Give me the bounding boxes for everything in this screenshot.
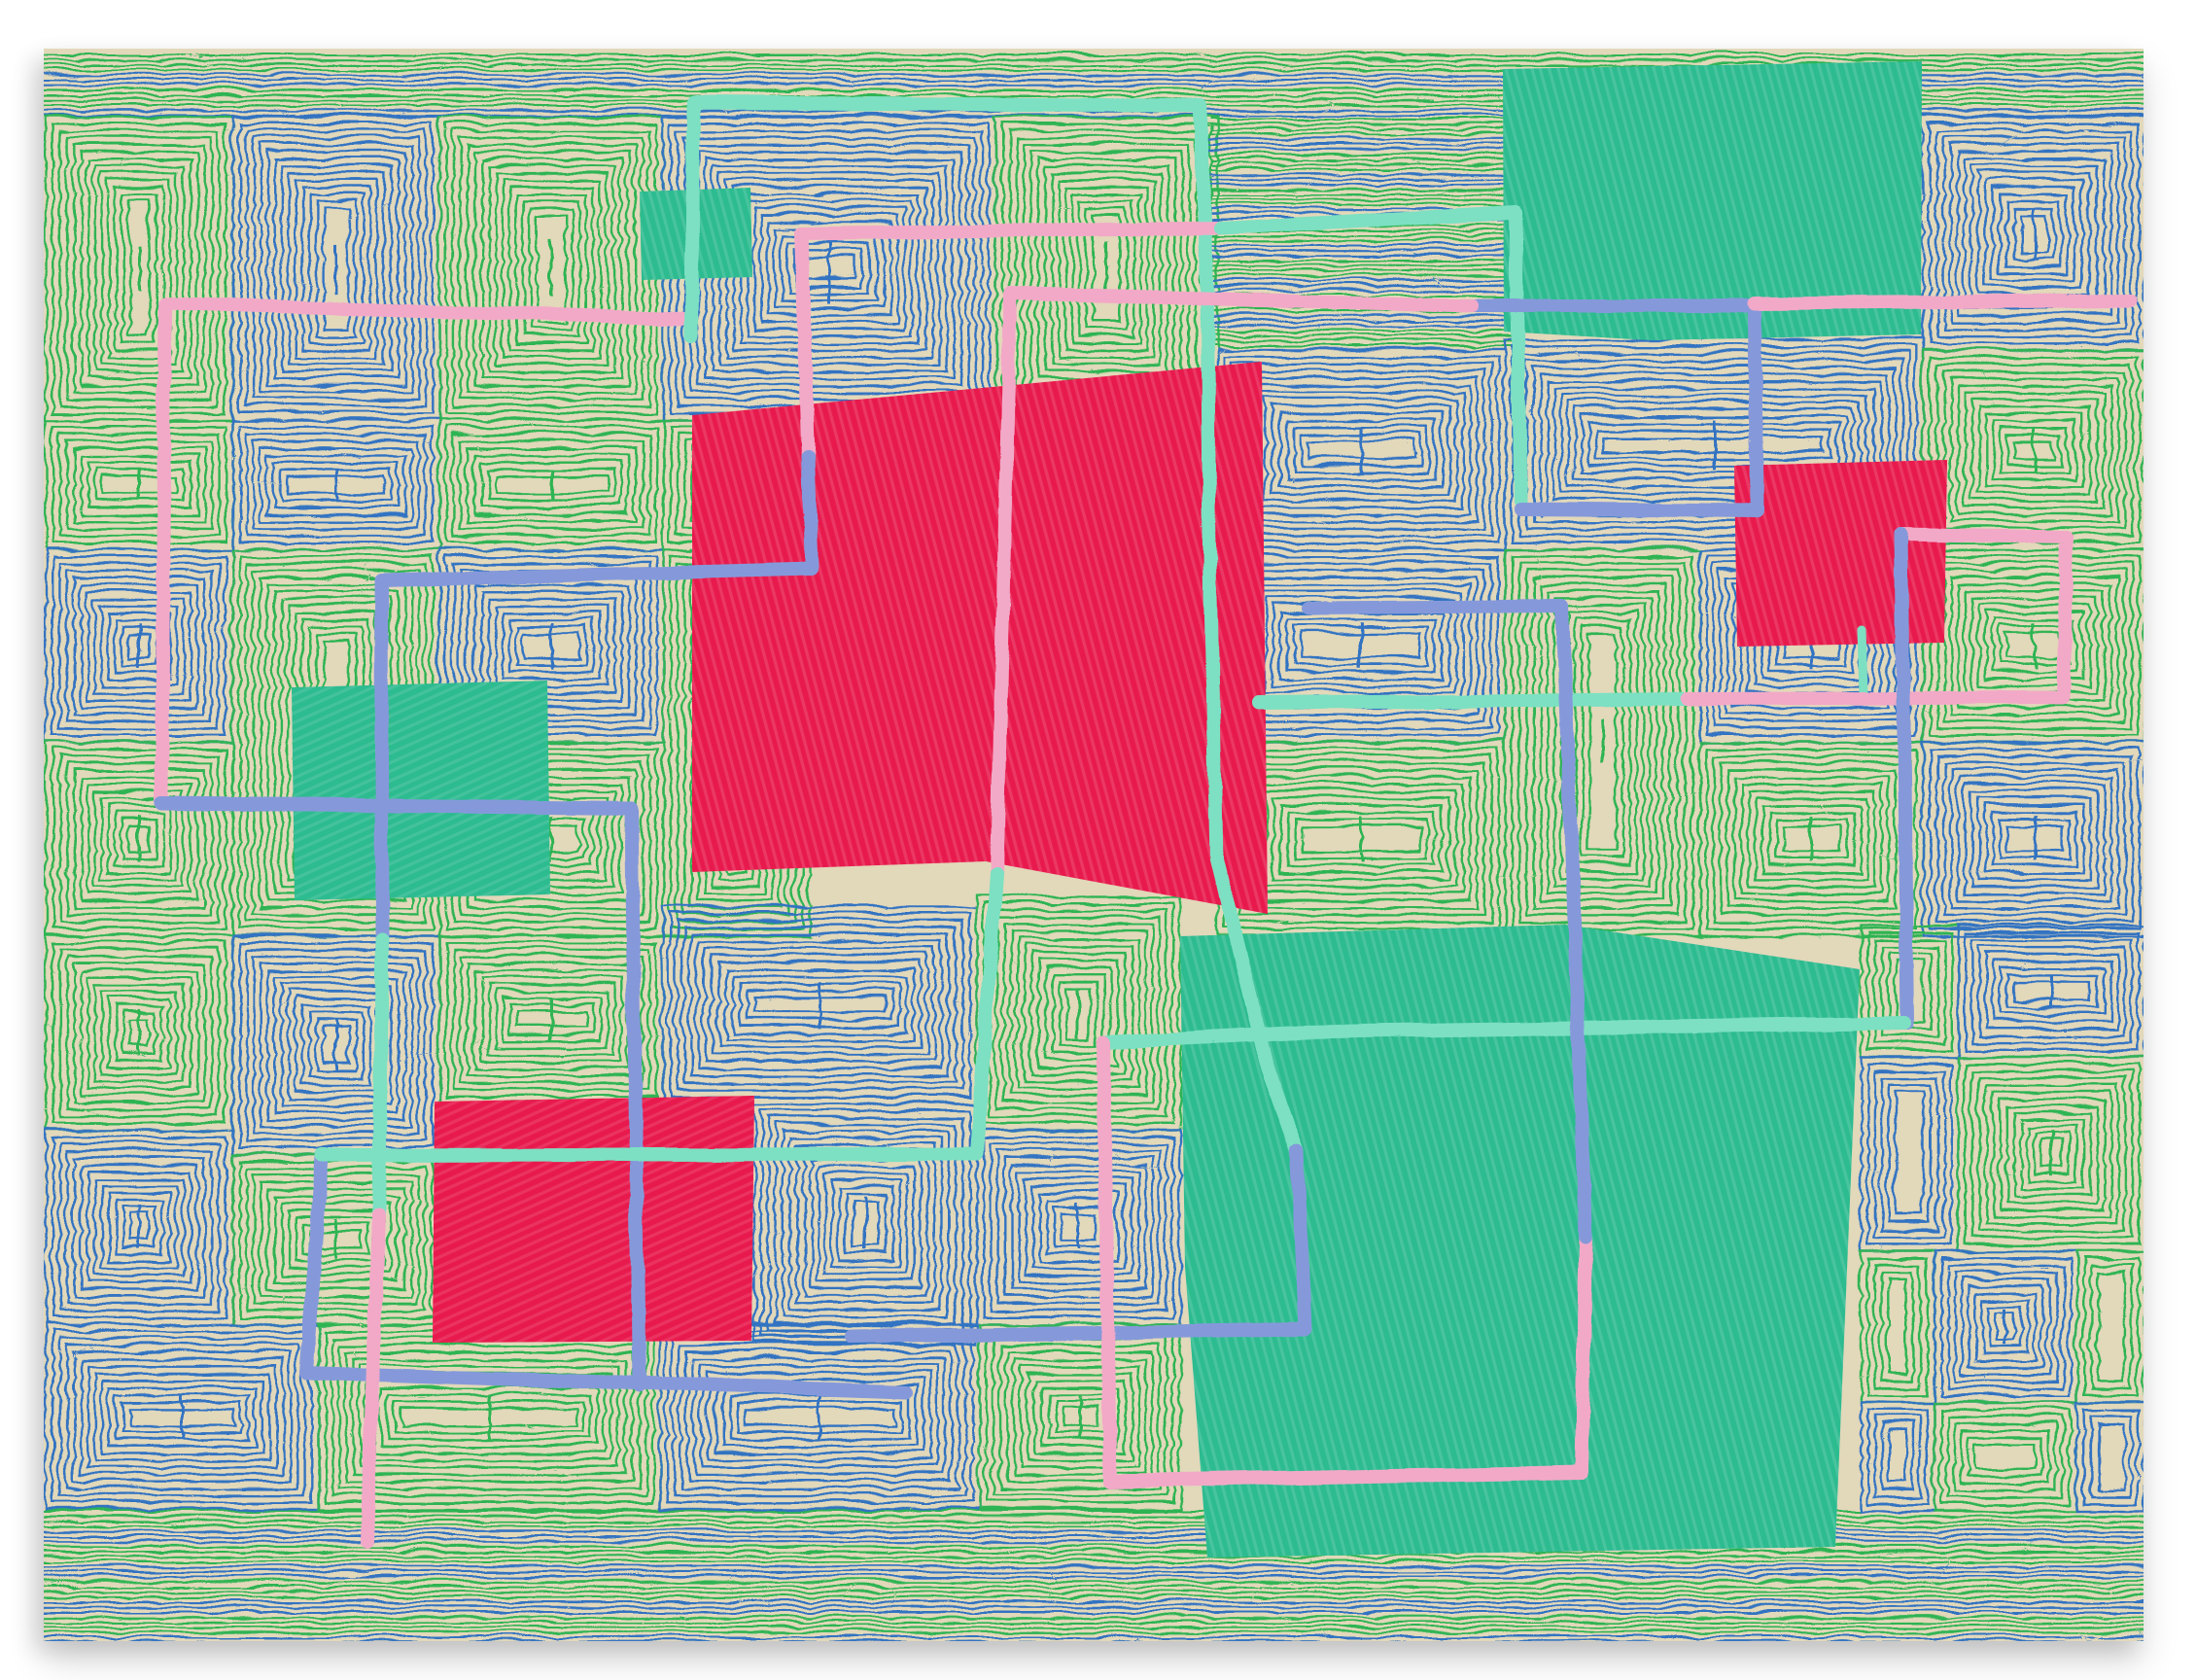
line-bar-f-pink	[799, 227, 1221, 232]
line-tail-h-pink	[1754, 299, 2129, 302]
pattern-tile	[44, 933, 230, 1128]
pattern-tile	[1956, 1055, 2144, 1249]
block-brush-texture	[692, 362, 1268, 914]
pattern-tile	[658, 1322, 977, 1507]
block-brush-texture	[292, 681, 550, 900]
pattern-tile	[44, 547, 230, 740]
block-brush-texture	[1734, 460, 1947, 647]
pattern-tile	[44, 1128, 230, 1322]
pattern-tile	[44, 1322, 316, 1507]
painting-svg	[44, 49, 2144, 1641]
line-drop-i-mint	[377, 937, 381, 1213]
artwork-photo	[0, 0, 2196, 1680]
block-brush-texture	[433, 1096, 754, 1343]
pattern-tile	[44, 740, 230, 933]
painting-canvas	[44, 49, 2144, 1641]
line-drop-i-pink	[799, 232, 807, 455]
line-loop-j-periwinkle	[1900, 533, 1906, 1022]
dash-mint-dash-right	[1862, 630, 1864, 694]
line-loop-j-mint	[1257, 698, 1687, 702]
